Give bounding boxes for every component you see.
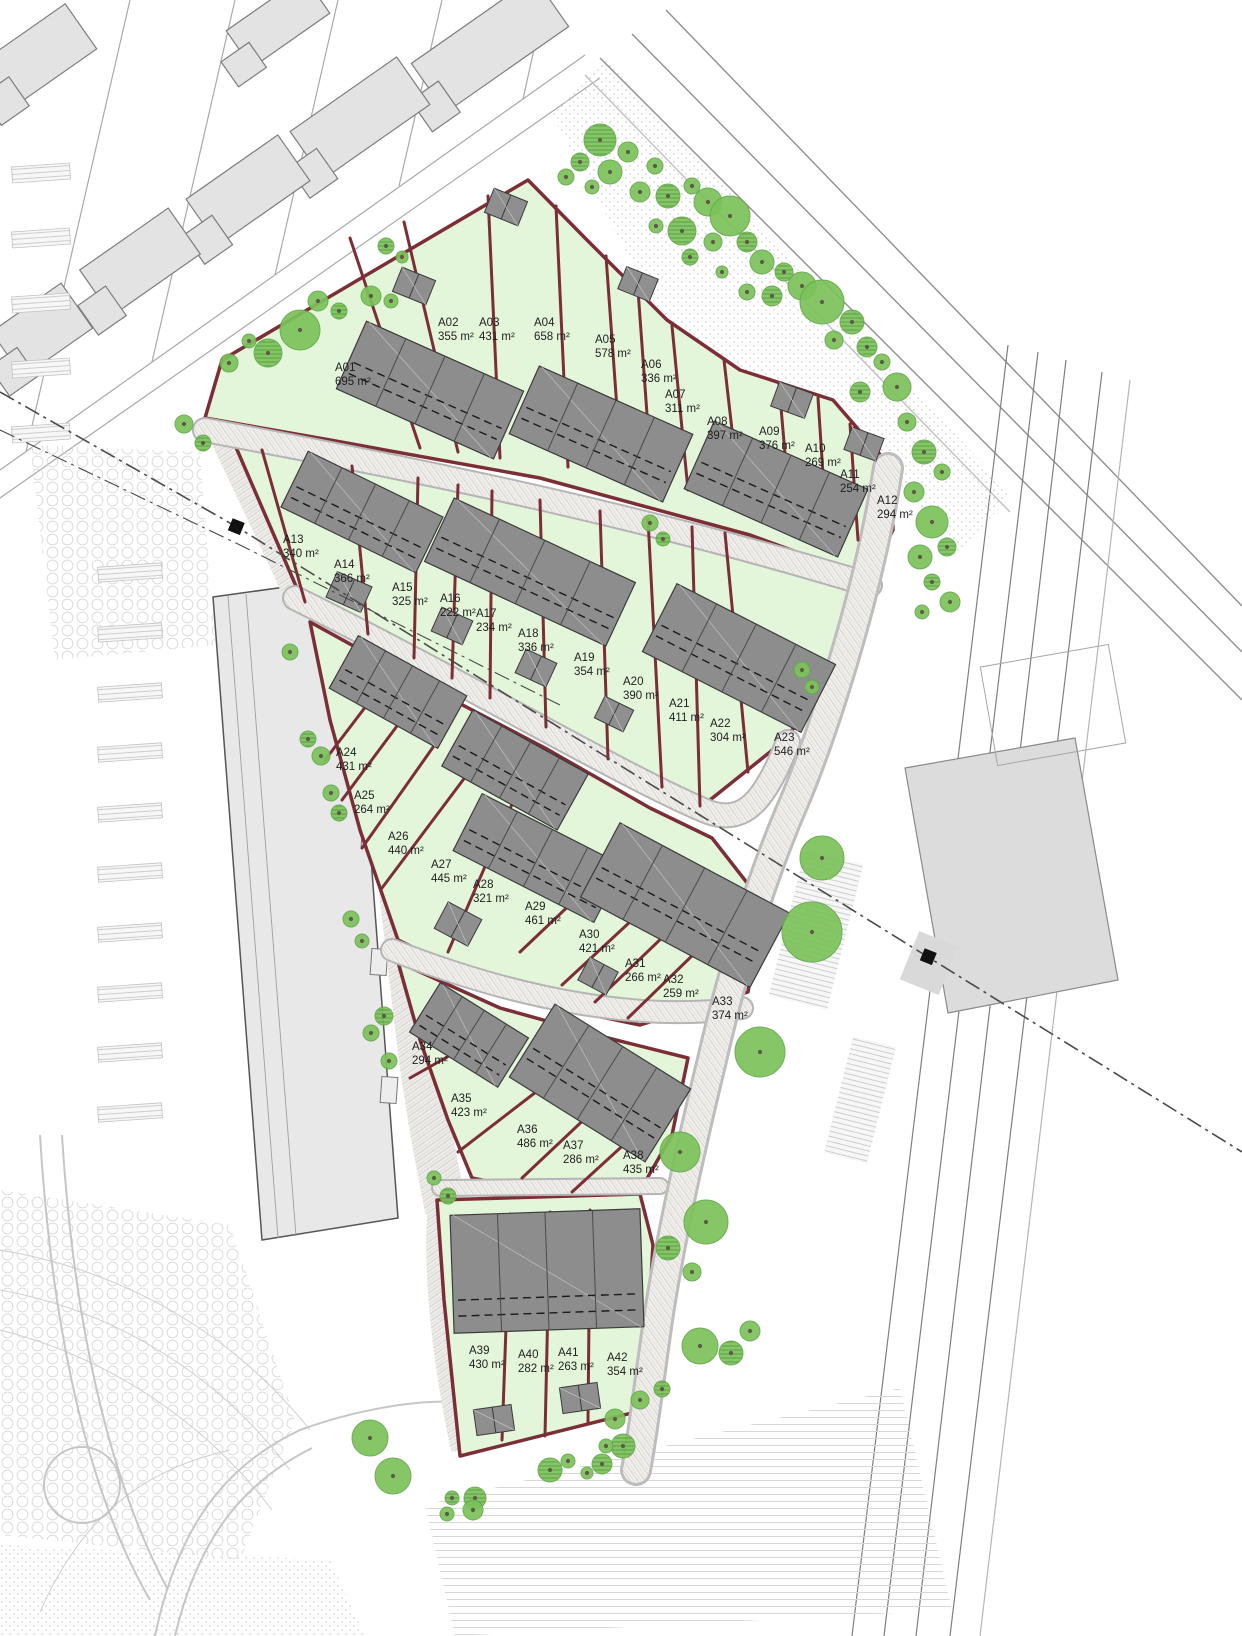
existing-house (393, 0, 573, 132)
tree-icon (660, 1132, 700, 1172)
tree-icon (630, 182, 650, 202)
parking-rows-existing (12, 163, 71, 443)
existing-house (208, 0, 334, 87)
tree-icon (800, 836, 844, 880)
tree-icon (940, 592, 960, 612)
tree-icon (740, 1321, 760, 1341)
tree-icon (654, 1381, 670, 1397)
tree-icon (735, 1027, 785, 1077)
tree-icon (363, 1025, 379, 1041)
tree-icon (684, 178, 700, 194)
tree-icon (904, 482, 924, 502)
tree-icon (538, 1458, 562, 1482)
tree-icon (323, 785, 339, 801)
tree-icon (561, 1454, 575, 1468)
tree-icon (331, 805, 347, 821)
tree-icon (737, 232, 757, 252)
tree-icon (396, 251, 408, 263)
hex-paved-area-bottom (0, 1190, 295, 1560)
tree-icon (762, 286, 782, 306)
garage-pair (473, 1404, 514, 1435)
tree-icon (656, 1236, 680, 1260)
tree-icon (924, 574, 940, 590)
tree-icon (618, 142, 638, 162)
garage-pair (559, 1382, 600, 1413)
tree-icon (883, 373, 911, 401)
tree-icon (308, 291, 328, 311)
tree-icon (242, 334, 256, 348)
tree-icon (916, 506, 948, 538)
tree-icon (571, 153, 589, 171)
existing-house (0, 4, 101, 126)
tree-icon (175, 415, 193, 433)
tree-icon (719, 1341, 743, 1365)
tree-icon (874, 354, 890, 370)
tree-icon (599, 1439, 613, 1453)
tree-icon (343, 911, 359, 927)
tree-icon (355, 934, 369, 948)
tree-icon (282, 644, 298, 660)
house-row (450, 1209, 644, 1334)
tree-icon (440, 1188, 456, 1204)
tree-icon (384, 294, 398, 308)
tree-icon (908, 545, 932, 569)
tree-icon (584, 124, 616, 156)
tree-icon (378, 238, 394, 254)
tree-icon (463, 1500, 483, 1520)
tree-icon (375, 1458, 411, 1494)
tree-icon (605, 1409, 625, 1429)
tree-icon (840, 310, 864, 334)
tree-icon (794, 662, 810, 678)
tree-icon (642, 515, 658, 531)
tree-icon (898, 413, 916, 431)
tree-icon (254, 339, 282, 367)
tree-icon (668, 217, 696, 245)
site-plan-canvas: A01695 m²A02355 m²A03431 m²A04658 m²A055… (0, 0, 1242, 1636)
tree-icon (581, 1467, 593, 1479)
tree-icon (300, 731, 316, 747)
tree-icon (427, 1171, 441, 1185)
tree-icon (592, 1454, 612, 1474)
tree-icon (934, 464, 950, 480)
pylon-icon (228, 518, 245, 535)
tree-icon (361, 286, 381, 306)
tree-icon (598, 160, 622, 184)
tree-icon (683, 1263, 701, 1281)
tree-icon (716, 266, 728, 278)
tree-icon (825, 331, 843, 349)
tree-icon (375, 1007, 393, 1025)
tree-icon (857, 337, 877, 357)
tree-icon (440, 1507, 454, 1521)
tree-icon (195, 435, 211, 451)
tree-icon (647, 158, 663, 174)
tree-icon (682, 1328, 718, 1364)
tree-icon (280, 310, 320, 350)
road-block-e (440, 1186, 660, 1188)
tree-icon (682, 249, 698, 265)
tree-icon (805, 680, 819, 694)
tree-icon (445, 1491, 459, 1505)
tree-icon (938, 538, 956, 556)
tree-icon (381, 1053, 397, 1069)
tree-icon (331, 303, 347, 319)
tree-icon (220, 354, 238, 372)
tree-icon (915, 605, 929, 619)
tree-icon (684, 1200, 728, 1244)
tree-icon (649, 219, 663, 233)
tree-icon (631, 1391, 649, 1409)
tree-icon (312, 747, 330, 765)
site-plan-drawing: A01695 m²A02355 m²A03431 m²A04658 m²A055… (0, 0, 1242, 1636)
tree-icon (710, 196, 750, 236)
tree-icon (739, 284, 755, 300)
tree-icon (912, 440, 936, 464)
tree-icon (585, 180, 599, 194)
tree-icon (782, 902, 842, 962)
tree-icon (611, 1434, 635, 1458)
tree-icon (850, 382, 870, 402)
tree-icon (750, 250, 774, 274)
tree-icon (656, 184, 680, 208)
stipple-area-bottom-left (0, 1545, 365, 1636)
tree-icon (704, 233, 722, 251)
tree-icon (800, 280, 844, 324)
tree-icon (352, 1420, 388, 1456)
tree-icon (558, 169, 574, 185)
tree-icon (656, 532, 670, 546)
